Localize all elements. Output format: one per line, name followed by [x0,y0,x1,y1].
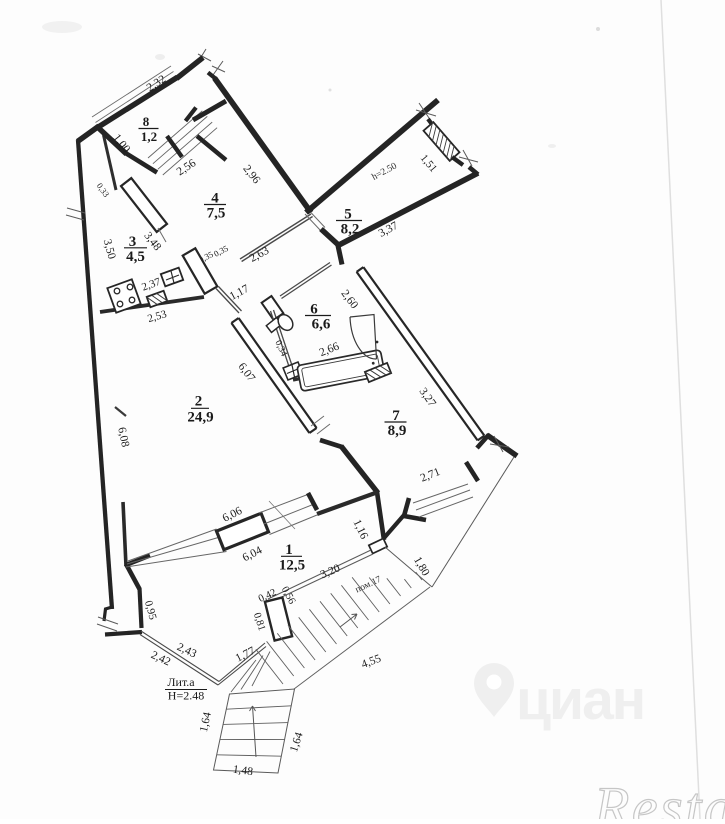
svg-text:24,9: 24,9 [187,410,213,426]
svg-text:7,5: 7,5 [207,206,226,222]
svg-text:8: 8 [143,114,150,129]
svg-text:Н=2.48: Н=2.48 [168,689,204,703]
svg-text:4,5: 4,5 [126,249,145,265]
svg-text:Restate: Restate [593,775,725,819]
svg-text:2: 2 [195,394,203,410]
svg-text:циан: циан [516,668,644,732]
svg-text:8,2: 8,2 [341,222,360,238]
svg-text:Лит.а: Лит.а [167,675,195,689]
svg-text:1: 1 [285,542,293,558]
svg-text:12,5: 12,5 [279,558,305,574]
svg-text:6,6: 6,6 [312,317,331,333]
svg-text:1,2: 1,2 [141,129,157,144]
svg-text:8,9: 8,9 [388,423,407,439]
